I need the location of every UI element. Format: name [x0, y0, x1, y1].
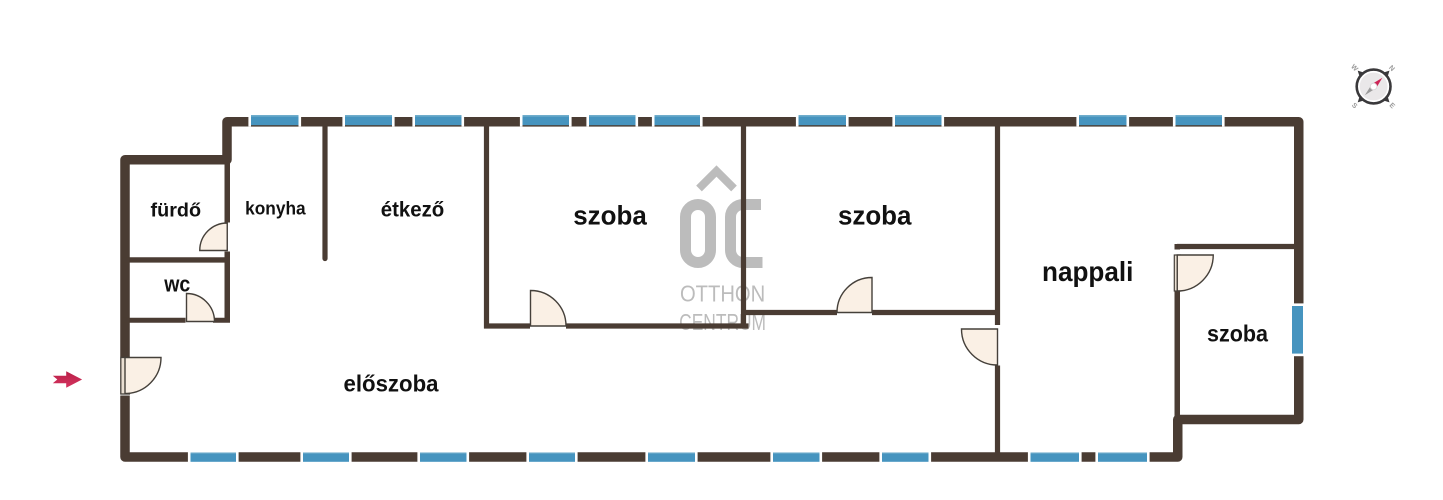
svg-text:konyha: konyha: [245, 197, 306, 218]
svg-text:szoba: szoba: [573, 201, 647, 231]
svg-text:fürdő: fürdő: [151, 199, 202, 221]
svg-text:W: W: [1349, 64, 1359, 74]
svg-text:szoba: szoba: [1207, 321, 1268, 347]
svg-text:szoba: szoba: [838, 201, 912, 231]
svg-text:wc: wc: [163, 272, 190, 297]
svg-text:OTTHON: OTTHON: [680, 280, 765, 307]
svg-text:előszoba: előszoba: [344, 371, 440, 397]
svg-text:étkező: étkező: [381, 197, 445, 221]
svg-text:E: E: [1388, 102, 1396, 110]
svg-text:nappali: nappali: [1042, 256, 1133, 287]
svg-text:S: S: [1350, 102, 1358, 110]
